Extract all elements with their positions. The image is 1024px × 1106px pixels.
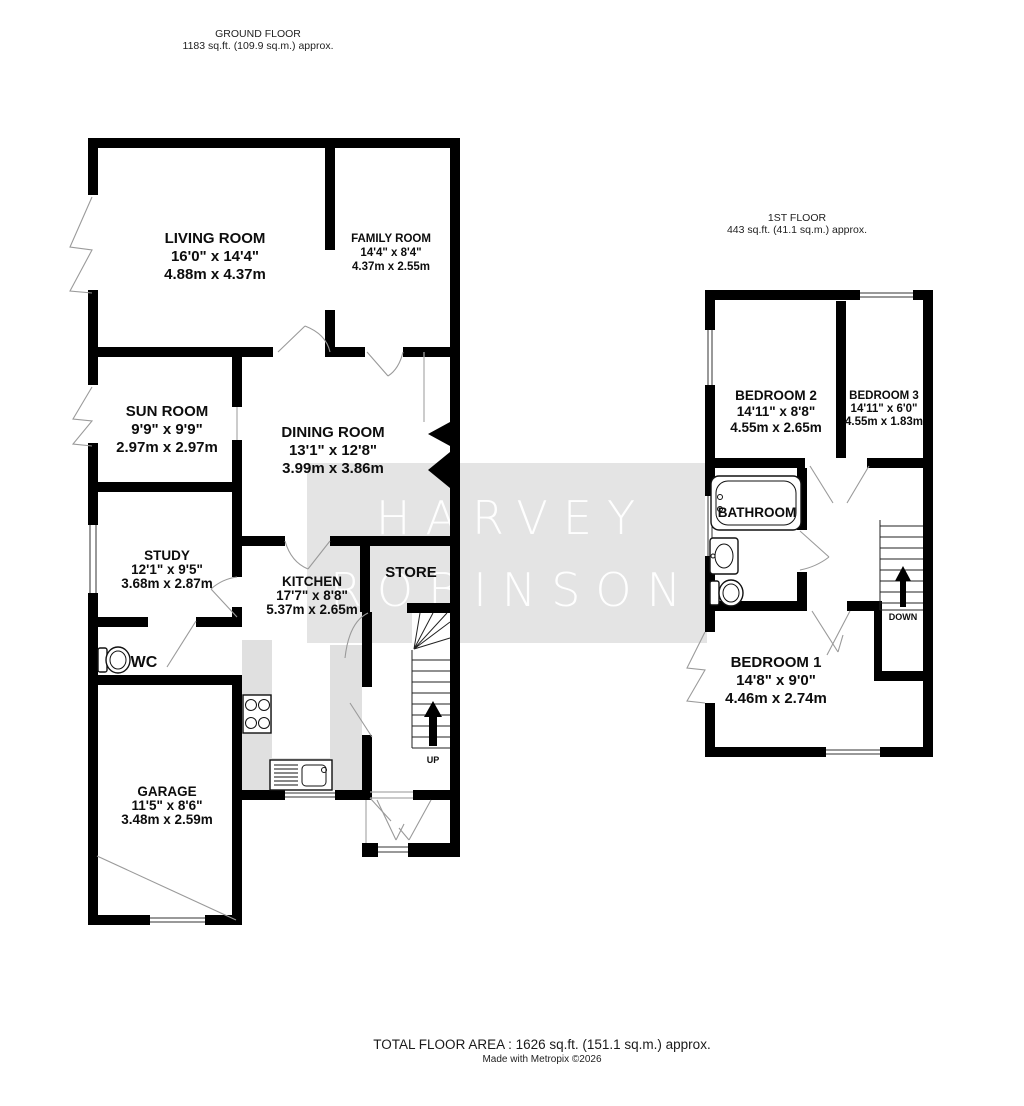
label-wc: WC bbox=[131, 654, 158, 671]
label-dining-room: DINING ROOM bbox=[281, 424, 384, 441]
toilet-icon-bathroom bbox=[710, 580, 743, 606]
floorplan-document: HARVEY ROBINSON GROUND FLOOR 1183 sq.ft.… bbox=[0, 0, 1024, 1106]
credit-line: Made with Metropix ©2026 bbox=[482, 1054, 602, 1065]
label-family-imperial: 14'4" x 8'4" bbox=[360, 247, 421, 259]
label-dining-imperial: 13'1" x 12'8" bbox=[289, 442, 377, 459]
first-floor-title: 1ST FLOOR bbox=[768, 212, 827, 224]
label-bedroom2-metric: 4.55m x 2.65m bbox=[730, 420, 822, 435]
label-bedroom3-imperial: 14'11" x 6'0" bbox=[851, 403, 918, 415]
label-sun-room: SUN ROOM bbox=[126, 403, 209, 420]
label-living-metric: 4.88m x 4.37m bbox=[164, 266, 266, 283]
label-bedroom2-imperial: 14'11" x 8'8" bbox=[737, 404, 816, 419]
label-bedroom3: BEDROOM 3 bbox=[849, 390, 919, 402]
label-kitchen-metric: 5.37m x 2.65m bbox=[266, 602, 358, 617]
basin-icon bbox=[710, 538, 738, 574]
ground-floor-area: 1183 sq.ft. (109.9 sq.m.) approx. bbox=[183, 40, 334, 52]
label-bedroom1-imperial: 14'8" x 9'0" bbox=[736, 672, 816, 689]
label-kitchen-imperial: 17'7" x 8'8" bbox=[276, 588, 348, 603]
bath-icon bbox=[711, 476, 801, 530]
label-study: STUDY bbox=[144, 548, 190, 563]
label-sun-imperial: 9'9" x 9'9" bbox=[131, 421, 202, 438]
label-store: STORE bbox=[385, 564, 436, 581]
stairs-down-label: DOWN bbox=[889, 612, 918, 622]
label-dining-metric: 3.99m x 3.86m bbox=[282, 460, 384, 477]
label-bedroom3-metric: 4.55m x 1.83m bbox=[845, 416, 923, 428]
label-family-metric: 4.37m x 2.55m bbox=[352, 261, 430, 273]
label-bedroom1: BEDROOM 1 bbox=[731, 654, 822, 671]
first-floor-area: 443 sq.ft. (41.1 sq.m.) approx. bbox=[727, 224, 867, 236]
label-garage: GARAGE bbox=[137, 784, 196, 799]
first-floor-plan: 1ST FLOOR 443 sq.ft. (41.1 sq.m.) approx… bbox=[687, 212, 933, 757]
label-living-imperial: 16'0" x 14'4" bbox=[171, 248, 259, 265]
ground-floor-title: GROUND FLOOR bbox=[215, 28, 301, 40]
label-living-room: LIVING ROOM bbox=[165, 230, 266, 247]
stairs-up-label: UP bbox=[427, 755, 440, 765]
label-garage-imperial: 11'5" x 8'6" bbox=[131, 798, 202, 813]
label-study-metric: 3.68m x 2.87m bbox=[121, 576, 213, 591]
label-garage-metric: 3.48m x 2.59m bbox=[121, 812, 213, 827]
label-kitchen: KITCHEN bbox=[282, 574, 342, 589]
label-bedroom1-metric: 4.46m x 2.74m bbox=[725, 690, 827, 707]
staircase-down: DOWN bbox=[880, 520, 923, 622]
label-study-imperial: 12'1" x 9'5" bbox=[131, 562, 203, 577]
label-bedroom2: BEDROOM 2 bbox=[735, 388, 817, 403]
down-arrow-icon bbox=[895, 566, 911, 607]
label-bathroom: BATHROOM bbox=[718, 505, 797, 520]
label-family-room: FAMILY ROOM bbox=[351, 233, 431, 245]
hob-icon bbox=[243, 695, 271, 733]
toilet-icon-wc bbox=[98, 647, 130, 673]
footer: TOTAL FLOOR AREA : 1626 sq.ft. (151.1 sq… bbox=[373, 1037, 710, 1065]
label-sun-metric: 2.97m x 2.97m bbox=[116, 439, 218, 456]
sink-icon bbox=[270, 760, 332, 790]
total-floor-area: TOTAL FLOOR AREA : 1626 sq.ft. (151.1 sq… bbox=[373, 1037, 710, 1052]
